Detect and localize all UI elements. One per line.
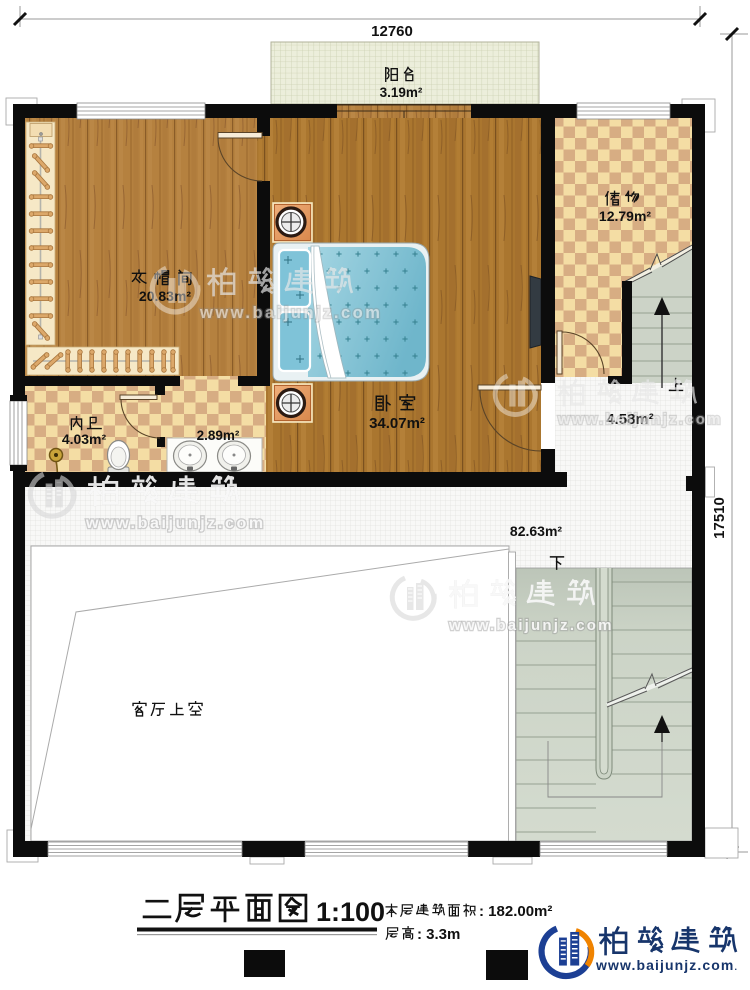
svg-text:12760: 12760 [371,23,413,40]
svg-text:82.63m²: 82.63m² [510,523,562,539]
svg-text:www.baijunjz.com: www.baijunjz.com [85,515,266,532]
svg-text:: 3.3m: : 3.3m [417,926,460,943]
svg-text:: 182.00m²: : 182.00m² [479,903,552,920]
svg-text:34.07m²: 34.07m² [369,415,425,432]
svg-text:17510: 17510 [711,497,728,539]
svg-text:1:100: 1:100 [316,897,385,927]
svg-text:12.79m²: 12.79m² [599,208,651,224]
svg-text:4.03m²: 4.03m² [62,431,107,447]
svg-text:www.baijunjz.com: www.baijunjz.com [199,304,382,322]
svg-text:www.baijunjz.com: www.baijunjz.com [557,411,723,428]
svg-text:www.baijunjz.com.: www.baijunjz.com. [595,957,738,973]
svg-text:www.baijunjz.com: www.baijunjz.com [448,617,614,634]
svg-text:2.89m²: 2.89m² [197,428,240,443]
svg-text:3.19m²: 3.19m² [380,85,423,100]
